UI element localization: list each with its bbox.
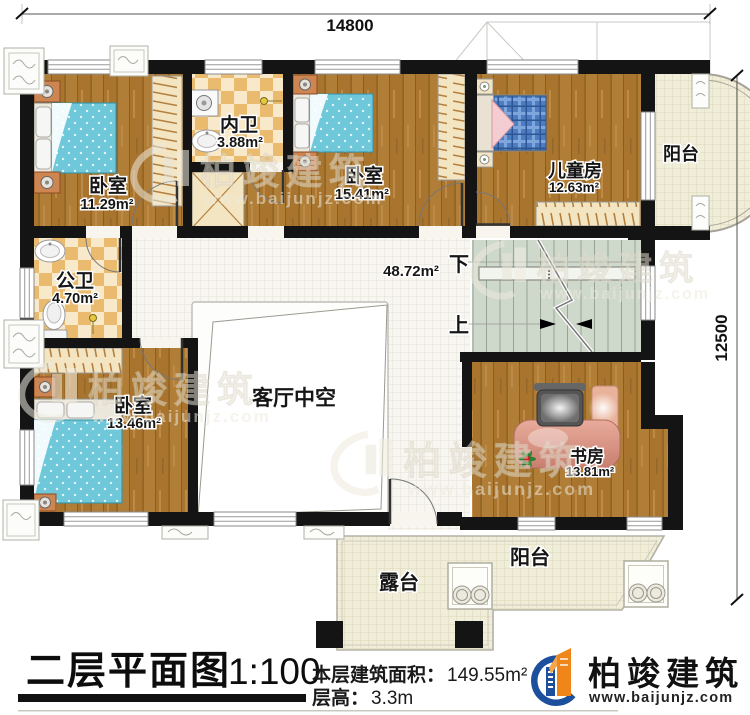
brand-name: 柏竣建筑 — [588, 655, 744, 692]
public-bath-label: 公卫 — [56, 270, 94, 292]
floor-area-text: 本层建筑面积：149.55m² — [312, 663, 527, 686]
terrace-column — [455, 621, 483, 648]
window — [20, 268, 34, 318]
planter-icon — [624, 561, 668, 607]
dimension-height-label: 12500 — [712, 314, 731, 361]
dimension-width-label: 14800 — [326, 16, 373, 35]
window — [315, 60, 400, 74]
window — [64, 512, 148, 526]
washing-machine-icon — [191, 90, 218, 116]
floorplan-canvas: 柏竣建筑 www.baijunjz.com — [0, 0, 750, 715]
stairs-down-label: 下 — [449, 254, 469, 276]
bedroom-1-area: 11.29m² — [80, 197, 133, 213]
public-bath-area: 4.70m² — [52, 291, 98, 307]
bedroom-1-label: 卧室 — [89, 174, 127, 197]
floorplan-page: 柏竣建筑 www.baijunjz.com — [0, 0, 750, 715]
wardrobe-icon — [536, 202, 640, 226]
terrace-label: 露台 — [379, 570, 419, 594]
terrace-column — [316, 621, 343, 648]
floor-height-value: 3.3m — [371, 688, 413, 709]
floor-height-label: 层高： — [312, 686, 369, 709]
balcony-bottom-label: 阳台 — [510, 545, 550, 569]
stairs-up-label: 上 — [449, 314, 469, 337]
floor-area-label: 本层建筑面积： — [312, 663, 445, 686]
kids-room-label: 儿童房 — [547, 160, 602, 181]
plan-title: 二层平面图 — [26, 650, 231, 693]
plan-scale: 1:100 — [228, 651, 321, 692]
sink-icon — [35, 240, 65, 262]
floor-height-text: 层高：3.3m — [312, 686, 413, 709]
planter-icon — [448, 563, 492, 609]
wardrobe-icon — [438, 74, 465, 180]
window — [518, 517, 555, 530]
floor-area-value: 149.55m² — [447, 665, 527, 686]
brand-website: www.baijunjz.com — [588, 690, 733, 706]
window — [487, 60, 578, 74]
footer-divider — [18, 710, 618, 712]
window — [20, 430, 34, 485]
window — [214, 512, 296, 526]
kids-room-area: 12.63m² — [549, 180, 600, 195]
hall-area-label: 48.72m² — [383, 263, 439, 280]
window — [205, 60, 262, 74]
inner-bath-area: 3.88m² — [217, 135, 263, 151]
window — [627, 517, 662, 530]
inner-bath-label: 内卫 — [220, 113, 258, 136]
title-underline — [18, 694, 306, 702]
balcony-door — [641, 112, 655, 200]
balcony-top-label: 阳台 — [663, 143, 699, 164]
